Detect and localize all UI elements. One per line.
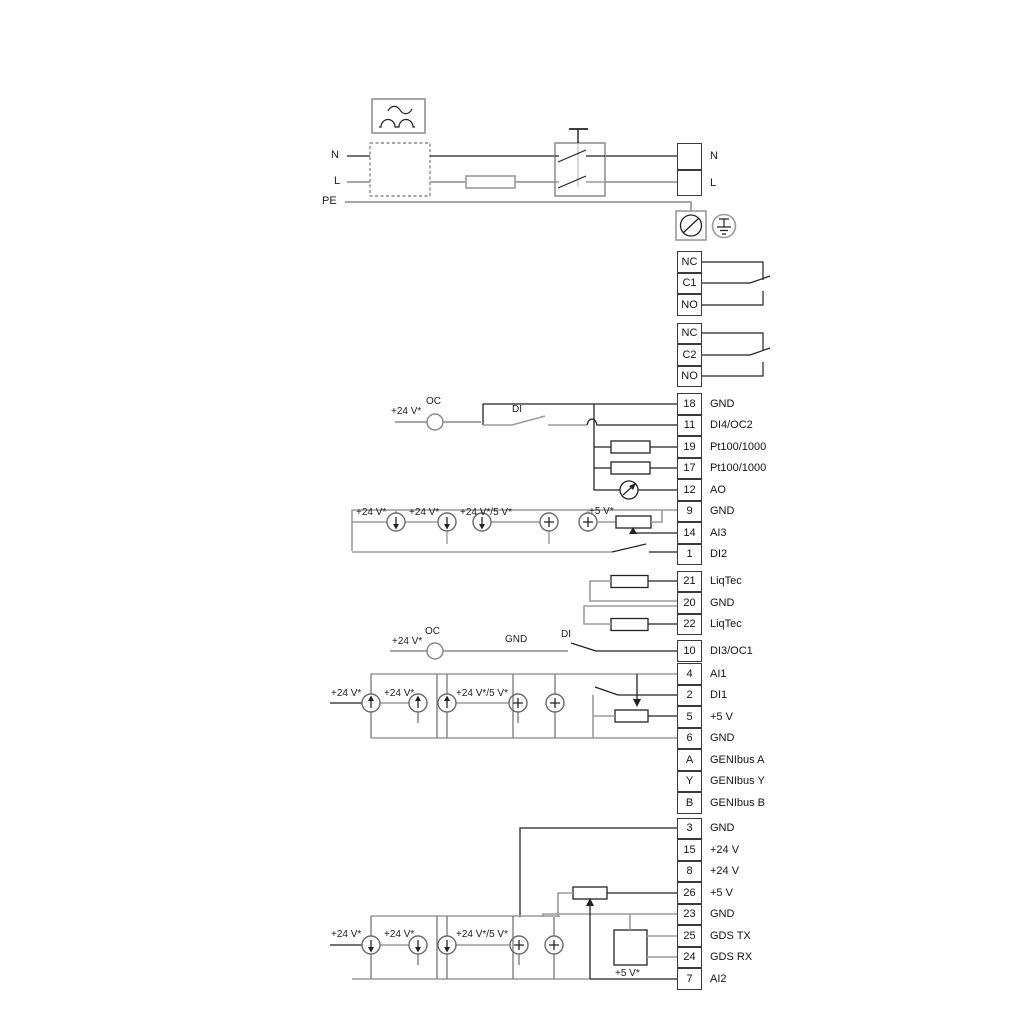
terminal-cell-23: 23 — [677, 904, 702, 926]
terminal-label-+5 V: +5 V — [710, 882, 733, 904]
label-d3: +24 V*/5 V* — [456, 929, 508, 940]
section-liqtec — [584, 576, 677, 631]
label-c1: +24 V* — [331, 688, 361, 699]
terminal-label-+24 V: +24 V — [710, 839, 739, 861]
label-b4: +5 V* — [589, 506, 614, 517]
terminal-label-DI1: DI1 — [710, 685, 727, 707]
terminal-cell-10: 10 — [677, 640, 702, 662]
terminal-number: 17 — [683, 462, 695, 474]
label-a_di: DI — [512, 404, 522, 415]
fuse — [466, 176, 515, 188]
terminal-label-+24 V: +24 V — [710, 861, 739, 883]
terminal-cell-3: 3 — [677, 818, 702, 840]
terminal-number: NO — [681, 299, 698, 311]
label-c_oc: OC — [425, 626, 440, 637]
terminal-number: 5 — [686, 711, 692, 723]
section-di4-oc2 — [395, 404, 677, 499]
terminal-number: C2 — [682, 349, 696, 361]
label-a_supply: +24 V* — [391, 406, 421, 417]
terminal-label-GND: GND — [710, 393, 734, 415]
terminal-cell-22: 22 — [677, 614, 702, 636]
terminal-label-GND: GND — [710, 501, 734, 523]
terminal-cell-C2: C2 — [677, 344, 702, 366]
terminal-label-DI2: DI2 — [710, 544, 727, 566]
terminal-number: 4 — [686, 668, 692, 680]
terminal-label-LiqTec: LiqTec — [710, 571, 742, 593]
ac-converter-box — [372, 99, 425, 133]
terminal-label-GND: GND — [710, 728, 734, 750]
label-c_di: DI — [561, 629, 571, 640]
terminal-label-GENIbus B: GENIbus B — [710, 792, 765, 814]
terminal-cell-B: B — [677, 792, 702, 814]
terminal-number: 9 — [686, 505, 692, 517]
terminal-number: NO — [681, 370, 698, 382]
liqtec-sensor — [611, 576, 648, 588]
terminal-number: 8 — [686, 865, 692, 877]
terminal-cell-NC: NC — [677, 323, 702, 345]
terminal-number: 24 — [683, 951, 695, 963]
terminal-label-AI3: AI3 — [710, 522, 727, 544]
terminal-cell-6: 6 — [677, 728, 702, 750]
terminal-label-Pt100/1000: Pt100/1000 — [710, 458, 766, 480]
terminal-label-GENIbus A: GENIbus A — [710, 749, 764, 771]
terminal-number: 7 — [686, 973, 692, 985]
pt100-sensor — [611, 462, 650, 474]
terminal-number: 2 — [686, 689, 692, 701]
terminal-cell-NC: NC — [677, 251, 702, 273]
terminal-number: 22 — [683, 618, 695, 630]
terminal-cell-19: 19 — [677, 436, 702, 458]
voltage-source-5v — [545, 936, 563, 954]
terminal-label-Pt100/1000: Pt100/1000 — [710, 436, 766, 458]
terminal-label-L: L — [710, 170, 716, 197]
terminal-number: 20 — [683, 597, 695, 609]
di-switch — [512, 416, 545, 425]
potentiometer — [616, 516, 651, 528]
label-a_oc: OC — [426, 396, 441, 407]
terminal-cell-N — [677, 143, 702, 170]
terminal-cell-8: 8 — [677, 861, 702, 883]
terminal-cell-12: 12 — [677, 479, 702, 501]
potentiometer — [573, 887, 607, 899]
terminal-number: 6 — [686, 732, 692, 744]
label-c_gnd: GND — [505, 634, 527, 645]
terminal-label-GENIbus Y: GENIbus Y — [710, 771, 765, 793]
current-source — [438, 936, 456, 954]
pt100-sensor — [611, 441, 650, 453]
voltage-source-24v-5v — [509, 694, 527, 712]
section-bottom-options — [330, 828, 677, 979]
label-b1: +24 V* — [356, 507, 386, 518]
terminal-cell-7: 7 — [677, 968, 702, 990]
terminal-number: 26 — [683, 887, 695, 899]
mains-wires — [345, 156, 691, 211]
terminal-number: C1 — [682, 277, 696, 289]
terminal-cell-NO: NO — [677, 294, 702, 316]
relay1-contacts — [702, 262, 770, 305]
terminal-number: 1 — [686, 548, 692, 560]
open-collector-symbol — [427, 414, 443, 430]
terminal-cell-21: 21 — [677, 571, 702, 593]
terminal-label-GND: GND — [710, 592, 734, 614]
terminal-number: NC — [682, 327, 698, 339]
terminal-cell-25: 25 — [677, 925, 702, 947]
label-b3: +24 V*/5 V* — [460, 507, 512, 518]
mains-switch — [555, 129, 605, 196]
terminal-label-GDS RX: GDS RX — [710, 947, 752, 969]
terminal-label-GDS TX: GDS TX — [710, 925, 751, 947]
terminal-cell-2: 2 — [677, 685, 702, 707]
earth-symbol — [713, 215, 736, 238]
label-b2: +24 V* — [409, 507, 439, 518]
relay2-contacts — [702, 333, 770, 376]
terminal-cell-20: 20 — [677, 592, 702, 614]
label-d2: +24 V* — [384, 929, 414, 940]
terminal-label-DI3/OC1: DI3/OC1 — [710, 640, 753, 662]
terminal-cell-1: 1 — [677, 544, 702, 566]
label-pe: PE — [322, 195, 337, 207]
label-d1: +24 V* — [331, 929, 361, 940]
terminal-cell-18: 18 — [677, 393, 702, 415]
terminal-cell-Y: Y — [677, 771, 702, 793]
terminal-cell-4: 4 — [677, 663, 702, 685]
terminal-cell-C1: C1 — [677, 273, 702, 295]
current-source-24v — [387, 513, 405, 531]
terminal-cell-17: 17 — [677, 458, 702, 480]
terminal-number: 14 — [683, 527, 695, 539]
terminal-label-GND: GND — [710, 904, 734, 926]
diagram-wires — [0, 0, 1024, 1024]
terminal-cell-15: 15 — [677, 839, 702, 861]
emc-filter-box — [370, 143, 430, 196]
current-source-24v — [362, 694, 380, 712]
terminal-label-AI2: AI2 — [710, 968, 727, 990]
wiper-arrow — [633, 699, 641, 707]
di2-switch — [612, 544, 646, 552]
terminal-cell-14: 14 — [677, 522, 702, 544]
terminal-number: B — [686, 797, 693, 809]
terminal-number: 10 — [683, 645, 695, 657]
terminal-number: 18 — [683, 398, 695, 410]
pe-screw-terminal — [676, 211, 706, 240]
terminal-label-+5 V: +5 V — [710, 706, 733, 728]
potentiometer — [615, 710, 648, 722]
terminal-number: 19 — [683, 441, 695, 453]
current-source-24v — [362, 936, 380, 954]
di-switch — [571, 643, 596, 651]
label-c3: +24 V*/5 V* — [456, 688, 508, 699]
terminal-number: A — [686, 754, 693, 766]
terminal-label-DI4/OC2: DI4/OC2 — [710, 415, 753, 437]
terminal-number: 3 — [686, 822, 692, 834]
terminal-number: 25 — [683, 930, 695, 942]
terminal-label-N: N — [710, 143, 718, 170]
liqtec-sensor — [611, 619, 648, 631]
voltage-source — [546, 694, 564, 712]
terminal-number: NC — [682, 256, 698, 268]
current-source-24v — [438, 513, 456, 531]
gds-sensor-box — [614, 930, 647, 965]
section-ai3-options — [352, 510, 677, 552]
terminal-number: 21 — [683, 575, 695, 587]
label-c_supply: +24 V* — [392, 636, 422, 647]
terminal-number: 15 — [683, 844, 695, 856]
terminal-cell-11: 11 — [677, 415, 702, 437]
terminal-number: 23 — [683, 908, 695, 920]
terminal-number: Y — [686, 775, 693, 787]
label-l: L — [334, 175, 340, 187]
open-collector-symbol — [427, 643, 443, 659]
label-n: N — [331, 149, 339, 161]
label-c2: +24 V* — [384, 688, 414, 699]
terminal-cell-NO: NO — [677, 366, 702, 388]
voltage-source-24v-5v — [540, 513, 558, 531]
label-d4: +5 V* — [615, 968, 640, 979]
di1-switch — [595, 687, 618, 695]
wiring-diagram: const data = JSON.parse(document.getElem… — [0, 0, 1024, 1024]
terminal-cell-9: 9 — [677, 501, 702, 523]
terminal-label-AO: AO — [710, 479, 726, 501]
current-source — [438, 694, 456, 712]
terminal-cell-26: 26 — [677, 882, 702, 904]
terminal-label-LiqTec: LiqTec — [710, 614, 742, 636]
terminal-cell-5: 5 — [677, 706, 702, 728]
terminal-number: 11 — [684, 419, 695, 431]
terminal-number: 12 — [683, 484, 695, 496]
terminal-label-AI1: AI1 — [710, 663, 727, 685]
terminal-cell-24: 24 — [677, 947, 702, 969]
terminal-cell-A: A — [677, 749, 702, 771]
terminal-cell-L — [677, 170, 702, 197]
terminal-label-GND: GND — [710, 818, 734, 840]
pe-wire — [345, 202, 691, 211]
